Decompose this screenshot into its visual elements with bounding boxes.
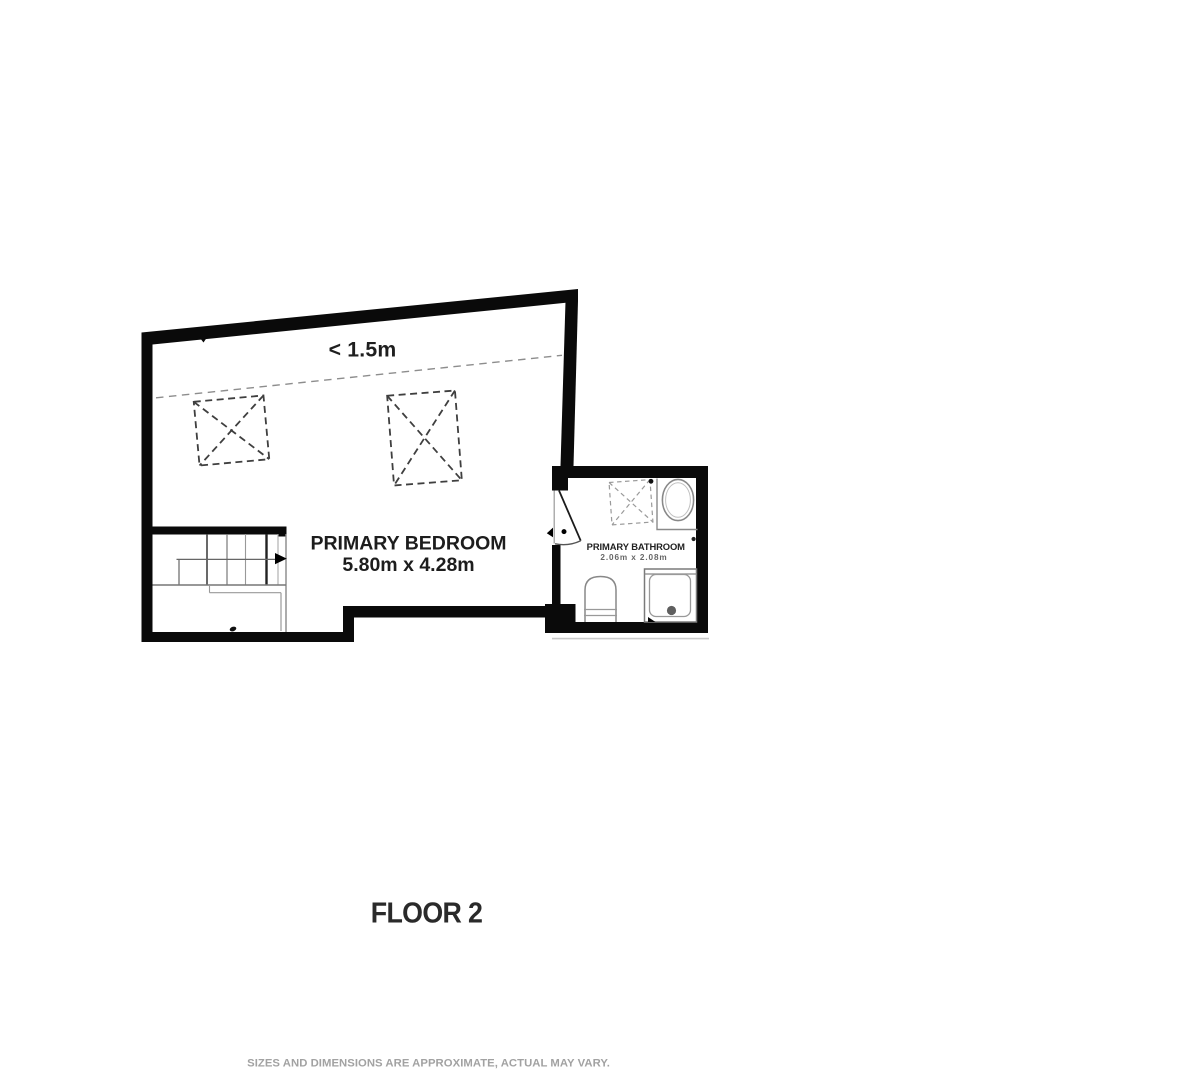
svg-text:2.06m x 2.08m: 2.06m x 2.08m xyxy=(600,553,667,562)
svg-text:FLOOR 2: FLOOR 2 xyxy=(371,896,483,928)
svg-text:PRIMARY BEDROOM: PRIMARY BEDROOM xyxy=(310,533,506,555)
svg-text:SIZES AND DIMENSIONS ARE APPRO: SIZES AND DIMENSIONS ARE APPROXIMATE, AC… xyxy=(247,1058,610,1070)
svg-text:PRIMARY BATHROOM: PRIMARY BATHROOM xyxy=(587,541,686,552)
svg-text:< 1.5m: < 1.5m xyxy=(329,339,397,362)
svg-text:5.80m x 4.28m: 5.80m x 4.28m xyxy=(342,554,474,576)
